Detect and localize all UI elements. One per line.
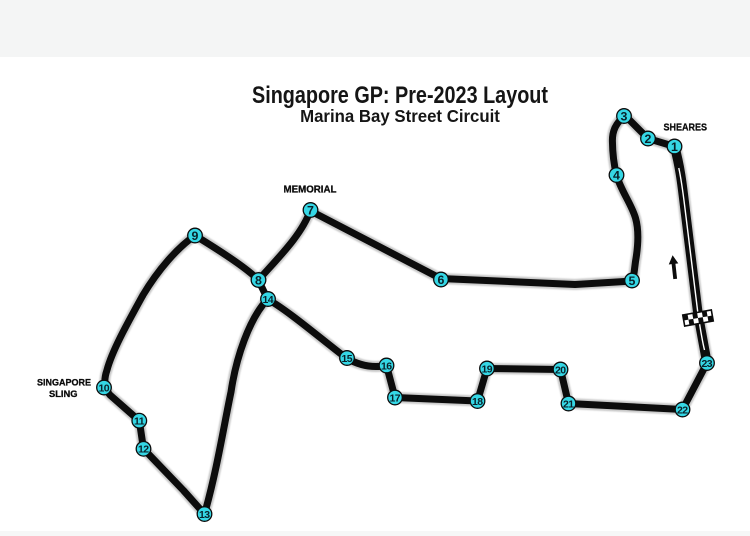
svg-text:2: 2 xyxy=(645,132,652,146)
svg-text:20: 20 xyxy=(555,364,566,376)
svg-text:1: 1 xyxy=(671,140,678,154)
svg-text:21: 21 xyxy=(563,398,574,410)
svg-text:14: 14 xyxy=(262,294,273,306)
svg-text:10: 10 xyxy=(98,382,109,394)
svg-text:16: 16 xyxy=(381,360,392,372)
svg-text:3: 3 xyxy=(621,110,628,124)
svg-text:23: 23 xyxy=(701,358,712,370)
svg-text:8: 8 xyxy=(255,274,262,288)
svg-text:7: 7 xyxy=(307,204,314,218)
svg-text:SLING: SLING xyxy=(49,389,78,400)
svg-text:13: 13 xyxy=(199,509,210,521)
svg-text:18: 18 xyxy=(472,396,483,408)
svg-text:4: 4 xyxy=(613,169,620,183)
svg-text:SINGAPORE: SINGAPORE xyxy=(37,377,91,388)
svg-text:6: 6 xyxy=(438,273,445,287)
svg-text:22: 22 xyxy=(677,404,688,416)
svg-text:17: 17 xyxy=(389,392,400,404)
svg-text:9: 9 xyxy=(192,229,199,243)
svg-text:12: 12 xyxy=(138,444,149,456)
svg-text:19: 19 xyxy=(481,363,492,375)
svg-text:11: 11 xyxy=(134,416,145,428)
svg-text:MEMORIAL: MEMORIAL xyxy=(284,185,337,196)
svg-text:5: 5 xyxy=(629,274,636,288)
svg-text:15: 15 xyxy=(341,353,352,365)
svg-text:SHEARES: SHEARES xyxy=(664,122,708,133)
